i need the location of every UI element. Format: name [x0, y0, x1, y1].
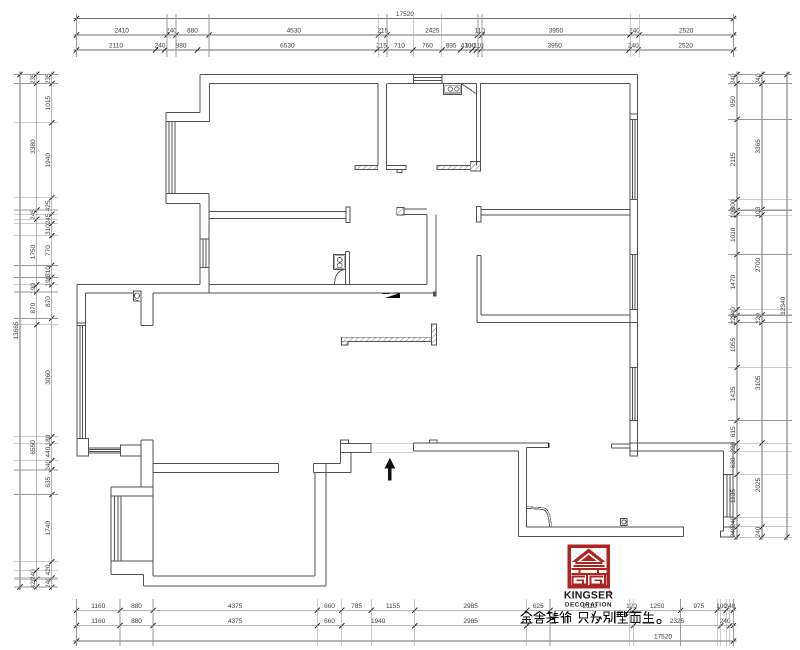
svg-text:1160: 1160: [91, 618, 105, 625]
svg-text:215: 215: [376, 43, 387, 50]
svg-text:1250: 1250: [650, 603, 665, 610]
svg-text:310: 310: [45, 224, 52, 235]
svg-text:1055: 1055: [730, 337, 737, 352]
svg-text:1940: 1940: [45, 153, 52, 168]
svg-text:103: 103: [755, 206, 762, 217]
svg-text:240: 240: [45, 577, 52, 588]
svg-text:13665: 13665: [13, 321, 20, 339]
svg-text:240: 240: [628, 43, 639, 50]
svg-text:895: 895: [446, 43, 457, 50]
svg-text:245: 245: [45, 213, 52, 224]
svg-text:3105: 3105: [755, 375, 762, 390]
svg-text:625: 625: [533, 603, 544, 610]
svg-text:120: 120: [626, 603, 637, 610]
svg-text:3950: 3950: [549, 28, 564, 35]
svg-text:1155: 1155: [386, 603, 400, 610]
svg-text:1740: 1740: [45, 520, 52, 535]
svg-text:240: 240: [45, 459, 52, 470]
svg-text:4375: 4375: [228, 618, 243, 625]
svg-text:635: 635: [45, 476, 52, 487]
svg-text:1010: 1010: [730, 227, 737, 242]
svg-text:2520: 2520: [678, 43, 693, 50]
svg-text:240: 240: [755, 73, 762, 84]
svg-text:3380: 3380: [30, 139, 37, 154]
svg-text:2410: 2410: [114, 28, 129, 35]
svg-text:2700: 2700: [755, 257, 762, 272]
svg-text:880: 880: [131, 618, 142, 625]
svg-text:1015: 1015: [45, 95, 52, 110]
svg-text:615: 615: [730, 426, 737, 437]
svg-text:235: 235: [45, 73, 52, 84]
svg-text:660: 660: [324, 603, 335, 610]
svg-text:2520: 2520: [679, 28, 694, 35]
svg-text:103: 103: [730, 207, 737, 218]
svg-text:880: 880: [187, 28, 198, 35]
svg-text:2985: 2985: [463, 618, 478, 625]
svg-text:975: 975: [693, 603, 704, 610]
svg-text:240: 240: [720, 618, 731, 625]
svg-text:3950: 3950: [547, 43, 562, 50]
svg-text:2115: 2115: [730, 152, 737, 166]
svg-text:2325: 2325: [670, 618, 685, 625]
svg-text:6550: 6550: [30, 440, 37, 455]
svg-text:880: 880: [131, 603, 142, 610]
svg-text:110: 110: [475, 28, 486, 35]
svg-text:3365: 3365: [755, 139, 762, 154]
svg-text:770: 770: [45, 245, 52, 256]
svg-text:1940: 1940: [371, 618, 386, 625]
svg-text:440: 440: [45, 446, 52, 457]
svg-text:950: 950: [730, 96, 737, 107]
svg-text:880: 880: [176, 43, 187, 50]
svg-text:4375: 4375: [228, 603, 243, 610]
svg-text:240: 240: [629, 28, 640, 35]
svg-text:420: 420: [45, 564, 52, 575]
svg-text:130: 130: [465, 43, 476, 50]
svg-text:1750: 1750: [30, 244, 37, 259]
svg-text:660: 660: [324, 618, 335, 625]
svg-text:1470: 1470: [730, 274, 737, 289]
svg-text:DECORATION: DECORATION: [565, 602, 612, 609]
svg-text:2985: 2985: [463, 603, 478, 610]
svg-text:12340: 12340: [780, 296, 787, 314]
svg-text:17520: 17520: [396, 11, 414, 18]
svg-text:785: 785: [351, 603, 362, 610]
svg-text:3060: 3060: [45, 370, 52, 385]
svg-text:2025: 2025: [755, 477, 762, 492]
svg-text:760: 760: [422, 43, 433, 50]
svg-text:240: 240: [755, 526, 762, 537]
svg-text:310: 310: [45, 266, 52, 277]
svg-text:240: 240: [155, 43, 166, 50]
svg-text:870: 870: [45, 296, 52, 307]
svg-text:2110: 2110: [109, 43, 123, 50]
svg-text:240: 240: [730, 73, 737, 84]
svg-text:1435: 1435: [730, 386, 737, 401]
svg-text:6530: 6530: [280, 43, 295, 50]
svg-text:4530: 4530: [287, 28, 302, 35]
svg-text:240: 240: [166, 28, 177, 35]
svg-text:870: 870: [30, 302, 37, 313]
svg-text:17520: 17520: [654, 634, 672, 641]
svg-text:1160: 1160: [91, 603, 105, 610]
svg-text:710: 710: [394, 43, 405, 50]
svg-text:KINGSER: KINGSER: [564, 589, 613, 601]
svg-text:2425: 2425: [425, 28, 440, 35]
svg-text:425: 425: [45, 200, 52, 211]
